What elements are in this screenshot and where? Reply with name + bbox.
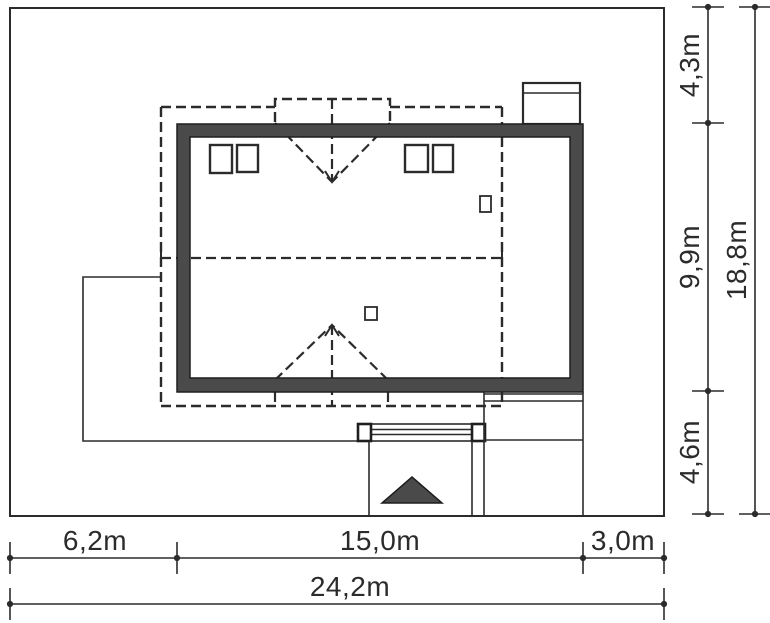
dimension-label-right-top: 4,3m [674,33,705,97]
dimension-label-bottom-right: 3,0m [591,525,655,556]
dimension-label-bottom-total: 24,2m [310,571,390,602]
dimension-label-right-middle: 9,9m [674,225,705,289]
site-plan-canvas: 4,3m 9,9m 4,6m 18,8m 6,2m [0,0,770,623]
roof-vent [365,307,377,320]
dimension-label-bottom-left: 6,2m [63,525,127,556]
dimension-label-right-total: 18,8m [721,220,752,300]
dimension-line-right-total: 18,8m [721,4,770,517]
roof-window [405,145,428,172]
dimension-label-bottom-middle: 15,0m [340,525,420,556]
roof-window [210,145,232,173]
site-plan-drawing: 4,3m 9,9m 4,6m 18,8m 6,2m [0,0,770,623]
roof-window [433,145,453,172]
dimension-line-bottom-total: 24,2m [7,571,667,620]
entrance-steps [358,424,485,441]
chimney [523,83,580,124]
roof-vent [480,196,491,212]
dimension-line-bottom-inner: 6,2m 15,0m 3,0m [7,525,667,574]
dimension-line-right-inner: 4,3m 9,9m 4,6m [674,4,724,517]
dimension-label-right-bottom: 4,6m [674,420,705,484]
roof-window [237,145,258,172]
